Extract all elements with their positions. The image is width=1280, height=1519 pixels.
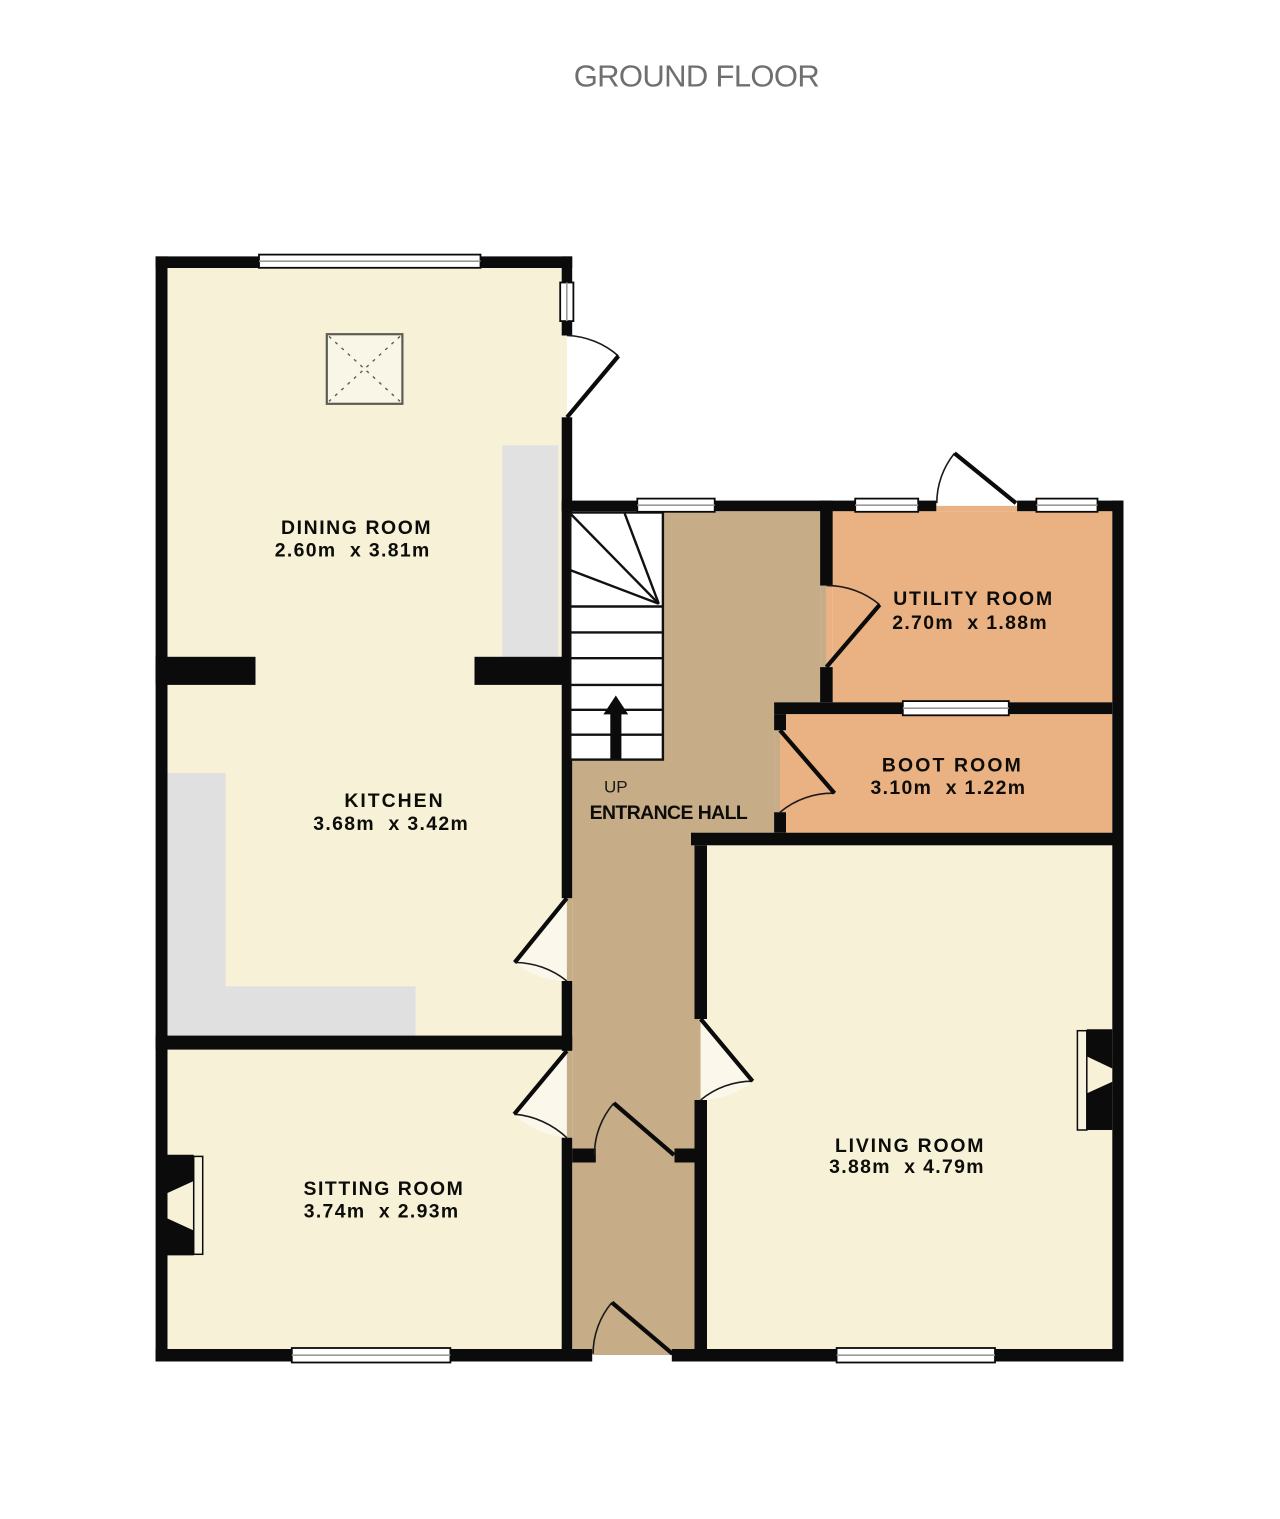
svg-text:3.88m x 4.79m: 3.88m x 4.79m <box>829 1156 985 1178</box>
svg-text:3.74m x 2.93m: 3.74m x 2.93m <box>304 1201 460 1223</box>
svg-text:SITTING ROOM: SITTING ROOM <box>304 1178 465 1200</box>
svg-text:ENTRANCE HALL: ENTRANCE HALL <box>590 802 748 824</box>
svg-text:2.60m x 3.81m: 2.60m x 3.81m <box>275 540 431 562</box>
svg-text:UP: UP <box>604 778 628 797</box>
svg-text:2.70m x 1.88m: 2.70m x 1.88m <box>892 612 1048 634</box>
svg-text:3.10m x 1.22m: 3.10m x 1.22m <box>870 777 1026 799</box>
svg-text:3.68m x 3.42m: 3.68m x 3.42m <box>313 813 469 835</box>
svg-text:GROUND FLOOR: GROUND FLOOR <box>574 59 819 94</box>
svg-text:LIVING ROOM: LIVING ROOM <box>835 1135 985 1157</box>
svg-text:KITCHEN: KITCHEN <box>344 790 444 812</box>
svg-text:UTILITY ROOM: UTILITY ROOM <box>893 588 1054 610</box>
svg-text:BOOT ROOM: BOOT ROOM <box>882 755 1023 777</box>
svg-text:DINING ROOM: DINING ROOM <box>281 517 432 539</box>
